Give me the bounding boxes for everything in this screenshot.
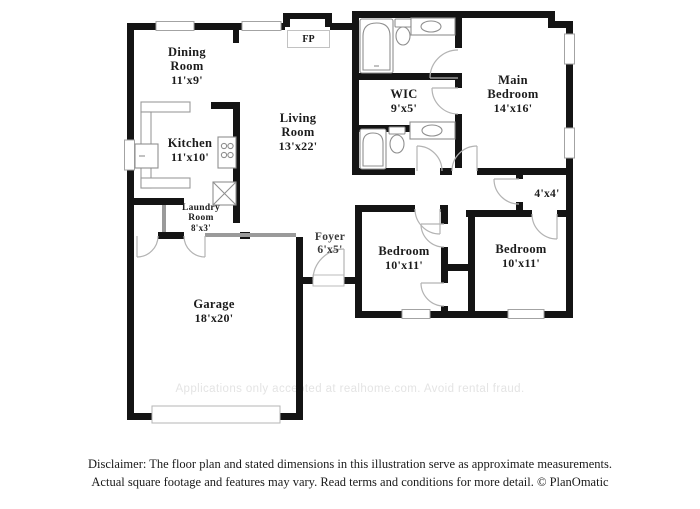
wall-closet-front-3	[441, 306, 448, 311]
room-label-laundry: Laundry Room 8'x3'	[175, 203, 227, 234]
bathtub-hall-icon	[360, 129, 386, 169]
sink-hall-icon	[410, 122, 455, 139]
window-dining	[156, 22, 194, 31]
wall-bath-bedroom-1	[455, 11, 462, 48]
laundry-garage-door-left	[137, 236, 158, 257]
room-label-kitchen: Kitchen 11'x10'	[135, 137, 245, 164]
room-label-garage: Garage 18'x20'	[169, 298, 259, 325]
wall-mainbedroom-bottom	[477, 168, 573, 175]
room-label-foyer: Foyer 6'x5'	[295, 231, 365, 256]
bedroom-closet-door-bottom	[421, 283, 444, 306]
sink-main-icon	[411, 18, 455, 35]
window-mainbedroom-1	[565, 34, 575, 64]
toilet-hall-icon	[389, 127, 405, 153]
refrigerator-icon	[213, 182, 236, 205]
room-label-bedroom-left: Bedroom 10'x11'	[359, 245, 449, 272]
room-dims: 9'x5'	[369, 102, 439, 115]
room-name: Garage	[169, 298, 259, 312]
wall-top-2	[194, 23, 242, 30]
wall-right-3	[566, 158, 573, 318]
room-dims: 11'x10'	[135, 151, 245, 164]
room-name: Dining Room	[155, 46, 219, 74]
hall-closet-door	[494, 179, 519, 204]
room-label-bedroom-right: Bedroom 10'x11'	[476, 243, 566, 270]
fireplace-wall-right	[325, 13, 332, 27]
right-bedroom-door	[532, 214, 557, 239]
wall-right-1	[566, 21, 573, 34]
room-dims: 10'x11'	[359, 259, 449, 272]
toilet-main-icon	[395, 19, 411, 45]
wall-foyer-bottom-right	[344, 277, 362, 284]
bathtub-main-icon	[360, 19, 393, 73]
wall-bath-left	[352, 11, 359, 175]
room-dims: 18'x20'	[169, 312, 259, 325]
disclaimer-text: Disclaimer: The floor plan and stated di…	[0, 455, 700, 491]
fireplace-wall-top	[283, 13, 332, 19]
room-dims: 4'x4'	[517, 188, 577, 201]
room-dims: 14'x16'	[478, 102, 548, 115]
room-label-main-bedroom: Main Bedroom 14'x16'	[478, 74, 548, 115]
wall-bath-bedroom-3	[455, 114, 462, 168]
wall-left-lower	[127, 170, 134, 420]
room-name: Main Bedroom	[478, 74, 548, 102]
room-dims: 10'x11'	[476, 257, 566, 270]
wall-rightbedroom-left	[468, 217, 475, 311]
wall-bedrooms-bottom-2	[430, 311, 508, 318]
laundry-garage-door-right	[184, 236, 205, 257]
wall-leftbedroom-top-1	[355, 205, 415, 212]
wall-bedrooms-bottom-3	[544, 311, 573, 318]
room-name: Bedroom	[476, 243, 566, 257]
wall-bath-bedroom-2	[455, 78, 462, 88]
left-bedroom-door	[415, 209, 440, 234]
room-dims: 8'x3'	[175, 224, 227, 234]
wall-bath-wic	[352, 73, 462, 80]
wall-left-upper	[127, 23, 134, 140]
room-name: Foyer	[295, 231, 365, 244]
room-label-dining: Dining Room 11'x9'	[155, 46, 219, 87]
room-label-living: Living Room 13'x22'	[266, 112, 330, 153]
window-kitchen	[125, 140, 135, 170]
window-bedroom-right	[508, 310, 544, 319]
wall-right-2	[566, 64, 573, 128]
wall-dining-living-stub	[233, 30, 239, 43]
front-door-threshold	[313, 275, 344, 286]
wall-garage-right	[296, 237, 303, 420]
disclaimer-line-2: Actual square footage and features may v…	[0, 473, 700, 491]
room-name: Bedroom	[359, 245, 449, 259]
floor-plan-page: Applications only accepted at realhome.c…	[0, 0, 700, 509]
room-name: Kitchen	[135, 137, 245, 151]
wall-garage-bottom-left	[127, 413, 152, 420]
wall-leftbedroom-top-2	[440, 205, 448, 212]
wall-bath-top	[352, 11, 555, 18]
hall-bath-door	[417, 146, 442, 171]
fireplace-label: FP	[287, 30, 330, 48]
window-bedroom-left	[402, 310, 430, 319]
window-mainbedroom-2	[565, 128, 575, 158]
room-dims: 6'x5'	[295, 244, 365, 257]
half-wall-laundry	[162, 205, 166, 232]
disclaimer-line-1: Disclaimer: The floor plan and stated di…	[0, 455, 700, 473]
room-name: Laundry Room	[175, 203, 227, 224]
room-label-wic: WIC 9'x5'	[369, 88, 439, 115]
window-living	[242, 22, 281, 31]
room-dims: 13'x22'	[266, 140, 330, 153]
wall-bedrooms-bottom-1	[355, 311, 402, 318]
room-name: Living Room	[266, 112, 330, 140]
wall-rightbedroom-top-2	[557, 210, 566, 217]
wall-closet-front-1	[441, 212, 448, 224]
garage-door	[152, 406, 280, 423]
wall-top-1	[127, 23, 156, 30]
room-name: WIC	[369, 88, 439, 102]
room-label-closet: 4'x4'	[517, 188, 577, 201]
room-dims: 11'x9'	[155, 74, 219, 87]
